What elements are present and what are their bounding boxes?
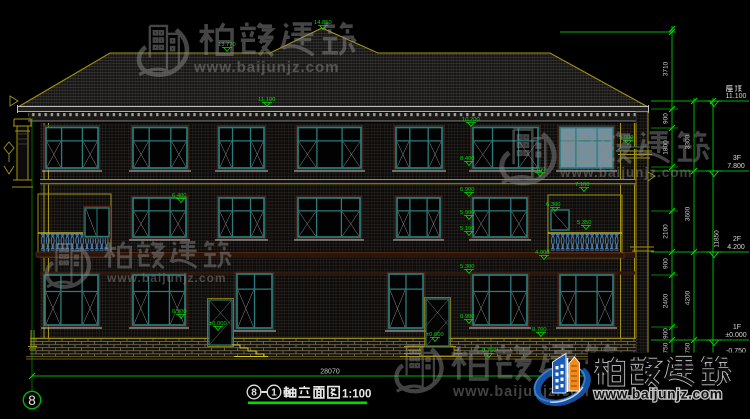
svg-text:1: 1 [271, 388, 277, 399]
svg-text:www.baijunjz.com: www.baijunjz.com [106, 271, 227, 285]
svg-text:1:100: 1:100 [342, 389, 371, 401]
svg-text:www.baijunjz.com: www.baijunjz.com [593, 387, 723, 402]
svg-text:www.baijunjz.com: www.baijunjz.com [193, 59, 339, 76]
svg-text:www.baijunjz.com: www.baijunjz.com [559, 165, 693, 180]
svg-text:8: 8 [251, 388, 257, 399]
